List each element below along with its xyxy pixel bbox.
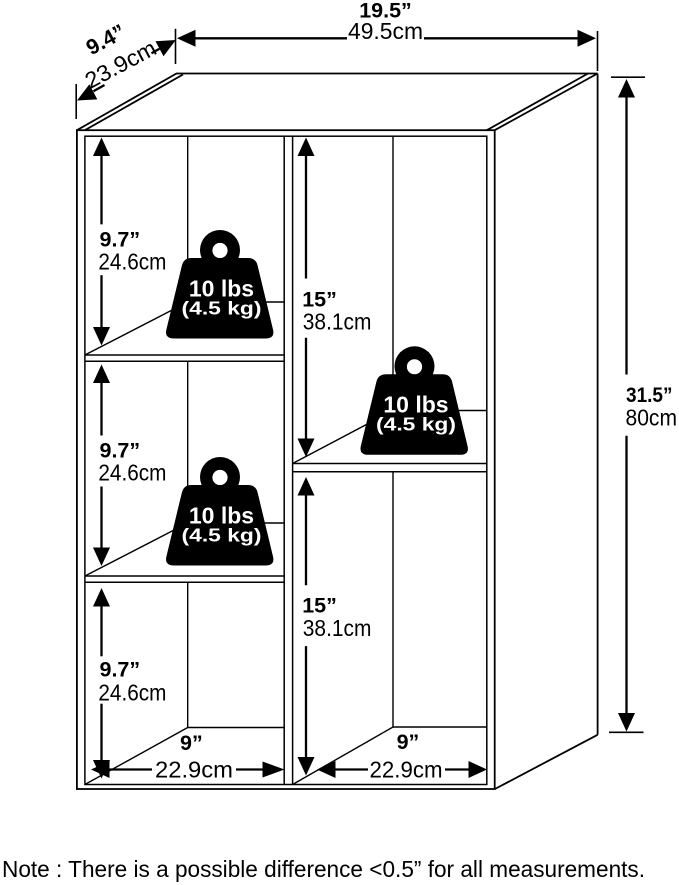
svg-text:24.6cm: 24.6cm <box>98 460 166 486</box>
svg-text:22.9cm: 22.9cm <box>155 757 233 783</box>
svg-text:9.7”: 9.7” <box>100 658 141 682</box>
svg-text:(4.5 kg): (4.5 kg) <box>182 297 262 318</box>
svg-text:(4.5 kg): (4.5 kg) <box>182 524 262 545</box>
svg-text:24.6cm: 24.6cm <box>98 679 166 705</box>
svg-text:22.9cm: 22.9cm <box>370 757 443 783</box>
svg-text:15”: 15” <box>302 594 337 618</box>
svg-text:Note : There is a possible dif: Note : There is a possible difference <0… <box>2 856 645 882</box>
svg-text:38.1cm: 38.1cm <box>303 308 372 334</box>
svg-text:80cm: 80cm <box>626 404 678 430</box>
svg-text:24.6cm: 24.6cm <box>98 248 166 274</box>
svg-text:9”: 9” <box>397 730 420 754</box>
svg-text:38.1cm: 38.1cm <box>303 615 372 641</box>
svg-text:9”: 9” <box>180 731 203 755</box>
svg-text:(4.5 kg): (4.5 kg) <box>376 414 456 435</box>
svg-text:49.5cm: 49.5cm <box>348 18 423 44</box>
